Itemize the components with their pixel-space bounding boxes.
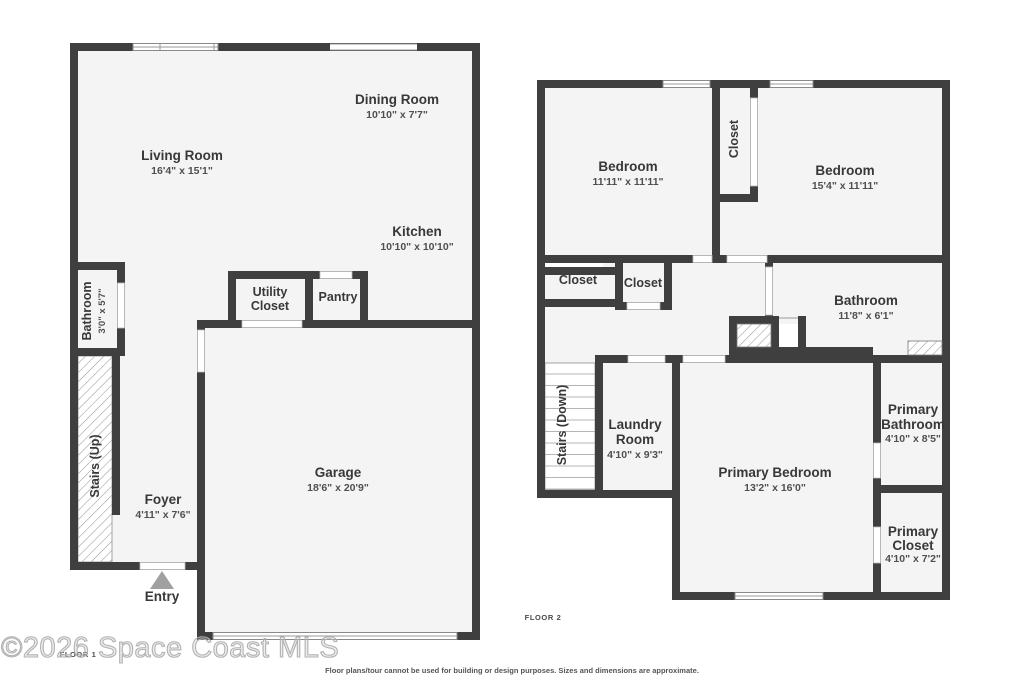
entry-label: Entry [145, 589, 180, 604]
wall-segment [664, 255, 672, 310]
wall-segment [360, 271, 368, 328]
bathroom2-label: Bathroom [834, 293, 898, 308]
door-opening [766, 267, 773, 315]
door-opening [198, 330, 205, 372]
door-opening [751, 98, 758, 186]
wall-segment [197, 320, 480, 328]
hatched-fixture [737, 324, 771, 347]
foyer-dims: 4'11" x 7'6" [135, 509, 190, 521]
wall-segment [595, 355, 603, 498]
stairs-down-label: Stairs (Down) [555, 385, 569, 466]
door-opening [628, 356, 665, 363]
wall-segment [537, 299, 623, 307]
utility-closet-label-line2: Closet [251, 299, 290, 313]
utility-closet-label-line1: Utility [253, 285, 288, 299]
floor-plan-page: Living Room 16'4" x 15'1" Dining Room 10… [0, 0, 1024, 683]
wall-segment [672, 355, 680, 600]
wall-segment [70, 262, 125, 270]
wall-segment [729, 316, 779, 324]
wall-segment [305, 271, 313, 328]
wall-segment [873, 485, 950, 493]
bathroom1-label: Bathroom [80, 281, 94, 340]
primary-bathroom-dims: 4'10" x 8'5" [885, 433, 941, 445]
wall-segment [537, 490, 680, 498]
bathroom2-dims: 11'8" x 6'1" [838, 310, 893, 322]
garage-label: Garage [315, 465, 362, 480]
wall-segment [228, 271, 236, 328]
laundry-label-line1: Laundry [608, 417, 662, 432]
wall-segment [472, 43, 480, 640]
hall-closet-right-label: Closet [624, 276, 663, 290]
bedroom-right-label: Bedroom [815, 163, 874, 178]
wall-segment [537, 80, 545, 498]
primary-closet-label-line1: Primary [888, 524, 939, 539]
wall-segment [537, 80, 950, 88]
wall-segment [798, 316, 806, 355]
door-opening [242, 321, 302, 328]
wall-segment [70, 43, 480, 51]
kitchen-label: Kitchen [392, 224, 442, 239]
dining-room-dims: 10'10" x 7'7" [366, 109, 428, 121]
bedroom-left-label: Bedroom [598, 159, 657, 174]
stairs-down-steps [545, 363, 595, 490]
door-opening [118, 283, 125, 328]
wall-segment [942, 80, 950, 600]
wall-segment [112, 348, 120, 515]
shower-stall [779, 324, 798, 347]
hall-closet-left-label: Closet [559, 273, 598, 287]
closet-between-label: Closet [727, 119, 741, 158]
pantry-label: Pantry [319, 290, 358, 304]
laundry-dims: 4'10" x 9'3" [607, 449, 663, 461]
primary-closet-dims: 4'10" x 7'2" [885, 553, 941, 565]
wall-segment [70, 43, 78, 570]
bedroom-right-dims: 15'4" x 11'11" [812, 180, 878, 192]
floor-plan-canvas: Living Room 16'4" x 15'1" Dining Room 10… [0, 0, 1024, 683]
dining-room-label: Dining Room [355, 92, 439, 107]
floor2-tag: FLOOR 2 [525, 613, 562, 622]
bedroom-left-dims: 11'11" x 11'11" [592, 176, 663, 188]
bathroom1-dims: 3'0" x 5'7" [97, 288, 108, 333]
wall-segment [712, 80, 720, 263]
foyer-label: Foyer [145, 492, 183, 507]
door-opening [727, 256, 767, 263]
closet-slider-opening [545, 263, 603, 267]
living-room-label: Living Room [141, 148, 223, 163]
mls-watermark: ©2026 Space Coast MLS [1, 632, 339, 665]
wall-segment [712, 194, 758, 202]
primary-bedroom-dims: 13'2" x 16'0" [744, 482, 806, 494]
stairs-up-label: Stairs (Up) [88, 434, 102, 497]
door-opening [693, 256, 712, 263]
primary-bathroom-label-line2: Bathroom [881, 417, 945, 432]
laundry-label-line2: Room [616, 432, 654, 447]
floor2-plan: Bedroom 11'11" x 11'11" Closet Bedroom 1… [525, 80, 950, 622]
door-opening [320, 272, 352, 279]
hatched-fixture [908, 341, 942, 355]
disclaimer-text: Floor plans/tour cannot be used for buil… [0, 666, 1024, 675]
kitchen-dims: 10'10" x 10'10" [380, 241, 453, 253]
door-opening [874, 527, 881, 563]
entry-arrow-icon [150, 571, 174, 589]
door-opening [140, 563, 185, 570]
wall-segment [228, 271, 313, 279]
primary-bedroom-label: Primary Bedroom [718, 465, 831, 480]
primary-bathroom-label-line1: Primary [888, 402, 939, 417]
window [330, 44, 417, 51]
garage-dims: 18'6" x 20'9" [307, 482, 369, 494]
living-room-dims: 16'4" x 15'1" [151, 165, 213, 177]
primary-closet-label-line2: Closet [892, 538, 934, 553]
floor1-footprint [74, 47, 476, 636]
door-opening [874, 443, 881, 478]
door-opening [683, 356, 725, 363]
door-opening [627, 303, 660, 310]
floor1-plan: Living Room 16'4" x 15'1" Dining Room 10… [60, 43, 480, 659]
